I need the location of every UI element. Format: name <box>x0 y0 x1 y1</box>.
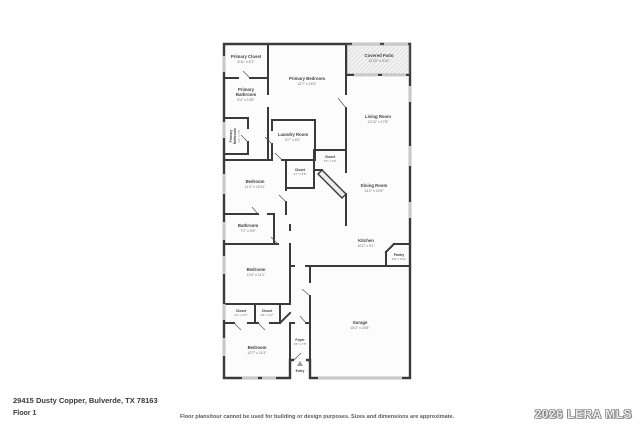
label-closet-left-dims: 4'1" x 2'7" <box>234 313 247 317</box>
property-address: 29415 Dusty Copper, Bulverde, TX 78163 <box>13 396 158 405</box>
label-closet-hall-dims: 4'7" x 6'5" <box>293 172 306 176</box>
floorplan-drawing: Primary Closet 6'11" x 6'1" Primary Bath… <box>222 42 412 384</box>
label-bedroom-2-dims: 11'4" x 10'11" <box>245 185 266 189</box>
label-bathroom: Bathroom <box>238 223 258 228</box>
label-primary-bathroom-2: Bathroom <box>236 92 256 97</box>
label-bedroom-2: Bedroom <box>246 179 265 184</box>
label-living-room-dims: 12'10" x 17'8" <box>367 120 389 124</box>
label-garage-dims: 18'2" x 20'8" <box>350 326 370 330</box>
label-bedroom-3-dims: 11'6" x 11'2" <box>247 273 266 277</box>
label-garage: Garage <box>353 320 368 325</box>
label-entry: Entry <box>296 369 305 373</box>
label-primary-closet: Primary Closet <box>231 54 262 59</box>
label-dining-room-dims: 14'2" x 10'9" <box>364 189 384 193</box>
label-kitchen-dims: 10'2" x 9'1" <box>357 244 375 248</box>
label-laundry-room-dims: 6'7" x 6'1" <box>285 138 301 142</box>
label-laundry-room: Laundry Room <box>278 132 308 137</box>
floor-label: Floor 1 <box>13 410 36 417</box>
label-bathroom-dims: 7'1" x 5'5" <box>240 229 256 233</box>
label-living-room: Living Room <box>365 114 391 119</box>
label-primary-bedroom-dims: 12'7" x 16'3" <box>297 82 317 86</box>
label-primary-bathroom-wc: Primary Bathroom 3'1" x 7'5" <box>229 128 241 144</box>
label-kitchen: Kitchen <box>358 238 374 243</box>
label-bedroom-3: Bedroom <box>247 267 266 272</box>
svg-text:3'1" x 7'5": 3'1" x 7'5" <box>237 129 241 142</box>
floorplan-svg: Primary Closet 6'11" x 6'1" Primary Bath… <box>222 42 412 384</box>
label-foyer-dims: 4'6" x 7'5" <box>293 342 306 346</box>
label-covered-patio-dims: 12'10" x 5'10" <box>368 59 390 63</box>
label-dining-room: Dining Room <box>361 183 388 188</box>
label-pantry-dims: 3'9" x 3'11" <box>392 257 407 261</box>
label-bedroom-4: Bedroom <box>248 345 267 350</box>
label-primary-bedroom: Primary Bedroom <box>289 76 325 81</box>
floorplan-page: Primary Closet 6'11" x 6'1" Primary Bath… <box>0 0 640 427</box>
mls-watermark: 2026 LERA MLS <box>535 407 632 421</box>
label-primary-closet-dims: 6'11" x 6'1" <box>238 60 256 64</box>
label-bedroom-4-dims: 10'7" x 11'4" <box>248 351 268 355</box>
label-closet-right-dims: 3'6" x 2'7" <box>260 313 273 317</box>
disclaimer-text: Floor plans/tour cannot be used for buil… <box>180 414 454 420</box>
label-covered-patio: Covered Patio <box>365 53 394 58</box>
label-closet-small-dims: 7'3" x 3'3" <box>323 159 336 163</box>
entry-arrow-icon <box>297 361 303 366</box>
label-primary-bathroom-dims: 9'4" x 14'5" <box>237 98 255 102</box>
